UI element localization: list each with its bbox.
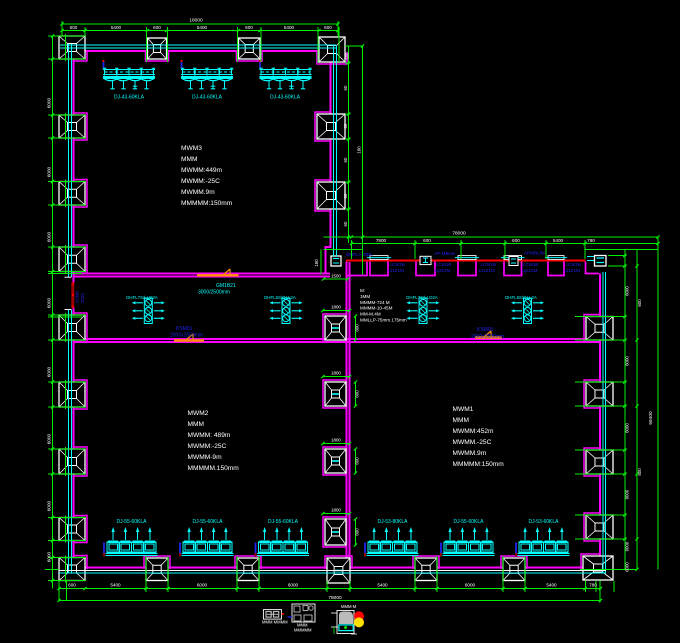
svg-text:5400: 5400 bbox=[377, 583, 388, 588]
svg-text:MMM: MMM bbox=[453, 417, 469, 424]
svg-text:BMPLA-MDL: BMPLA-MDL bbox=[346, 252, 373, 257]
svg-text:6000: 6000 bbox=[625, 423, 630, 433]
svg-text:600: 600 bbox=[70, 25, 78, 30]
svg-text:12x21M: 12x21M bbox=[388, 268, 405, 273]
svg-text:5400: 5400 bbox=[284, 25, 295, 30]
svg-text:MMMMM: MMMMM bbox=[294, 628, 312, 633]
svg-text:600: 600 bbox=[423, 238, 431, 243]
svg-text:6000: 6000 bbox=[625, 489, 630, 499]
svg-text:78000: 78000 bbox=[328, 595, 342, 601]
svg-text:1800: 1800 bbox=[331, 305, 341, 310]
svg-text:12x21M: 12x21M bbox=[434, 268, 451, 273]
svg-text:60: 60 bbox=[343, 157, 348, 162]
svg-text:60: 60 bbox=[343, 221, 348, 226]
svg-text:600: 600 bbox=[637, 468, 642, 476]
svg-text:MWM3: MWM3 bbox=[181, 145, 202, 152]
svg-text:5400: 5400 bbox=[553, 238, 564, 243]
svg-text:600: 600 bbox=[355, 324, 360, 332]
svg-text:6000: 6000 bbox=[625, 356, 630, 366]
svg-text:MMM: MMM bbox=[188, 421, 204, 428]
svg-text:MMM: MMM bbox=[181, 156, 197, 163]
svg-text:60: 60 bbox=[343, 123, 348, 128]
svg-text:DJ-43-60KLA: DJ-43-60KLA bbox=[270, 95, 301, 101]
svg-text:600: 600 bbox=[245, 25, 253, 30]
svg-text:600: 600 bbox=[355, 457, 360, 465]
svg-text:59400: 59400 bbox=[648, 411, 654, 425]
svg-text:DJ-55-60KLA: DJ-55-60KLA bbox=[453, 519, 484, 525]
svg-text:1MM: 1MM bbox=[360, 294, 370, 299]
svg-text:5400: 5400 bbox=[197, 25, 208, 30]
svg-text:18000: 18000 bbox=[189, 18, 203, 24]
svg-text:1800: 1800 bbox=[331, 508, 341, 513]
svg-text:LCM1B: LCM1B bbox=[481, 262, 496, 267]
svg-text:6000: 6000 bbox=[465, 583, 476, 588]
svg-text:78000: 78000 bbox=[452, 231, 466, 237]
svg-text:600: 600 bbox=[512, 238, 520, 243]
svg-text:7800: 7800 bbox=[376, 238, 387, 243]
svg-text:6000: 6000 bbox=[47, 366, 52, 377]
svg-text:5400: 5400 bbox=[111, 25, 122, 30]
svg-text:MMMMM:150mm: MMMMM:150mm bbox=[453, 461, 505, 468]
svg-text:60: 60 bbox=[343, 85, 348, 90]
svg-text:6000: 6000 bbox=[47, 433, 52, 444]
svg-text:LCM1B: LCM1B bbox=[523, 262, 538, 267]
svg-text:DHFL7S/LLD2A: DHFL7S/LLD2A bbox=[126, 295, 158, 300]
svg-text:MWMM.9m: MWMM.9m bbox=[453, 450, 487, 457]
svg-text:MWMM:449m: MWMM:449m bbox=[181, 167, 223, 174]
svg-text:600: 600 bbox=[355, 528, 360, 536]
svg-text:DJ-43-60KLA: DJ-43-60KLA bbox=[114, 95, 145, 101]
svg-text:5400: 5400 bbox=[546, 583, 557, 588]
svg-text:LCM1B: LCM1B bbox=[390, 262, 405, 267]
svg-text:DHFL5S/QLL2A: DHFL5S/QLL2A bbox=[505, 295, 537, 300]
svg-text:MWMM:-25C: MWMM:-25C bbox=[188, 443, 227, 450]
svg-text:AP-MBLM: AP-MBLM bbox=[434, 251, 455, 256]
svg-text:LCM1B: LCM1B bbox=[566, 262, 581, 267]
svg-text:MMMM-10-45M: MMMM-10-45M bbox=[360, 306, 393, 311]
svg-text:DHFL5S/QLL2A: DHFL5S/QLL2A bbox=[264, 295, 296, 300]
svg-text:6000: 6000 bbox=[47, 551, 52, 562]
svg-text:6000: 6000 bbox=[625, 562, 630, 572]
svg-text:12x21M: 12x21M bbox=[521, 268, 538, 273]
svg-text:MWMM:452m: MWMM:452m bbox=[453, 428, 495, 435]
svg-text:MWM1: MWM1 bbox=[453, 406, 474, 413]
svg-text:M:: M: bbox=[360, 288, 365, 293]
svg-text:DHFL7S/LLD2A: DHFL7S/LLD2A bbox=[406, 295, 438, 300]
svg-text:DJ-53-60KLA: DJ-53-60KLA bbox=[528, 519, 559, 525]
svg-text:6000: 6000 bbox=[288, 583, 299, 588]
svg-text:1500: 1500 bbox=[331, 273, 341, 278]
svg-text:KSM0: KSM0 bbox=[75, 290, 80, 303]
svg-text:60: 60 bbox=[343, 193, 348, 198]
svg-text:5400: 5400 bbox=[110, 583, 121, 588]
svg-text:DJ-55-60KLA: DJ-55-60KLA bbox=[268, 519, 299, 525]
svg-text:2025: 2025 bbox=[80, 293, 85, 303]
svg-text:MMM-M: MMM-M bbox=[341, 604, 357, 609]
svg-text:GM1B21: GM1B21 bbox=[216, 283, 236, 289]
svg-text:2000x2500mm: 2000x2500mm bbox=[170, 333, 203, 339]
svg-text:600: 600 bbox=[355, 390, 360, 398]
svg-text:DJ-55-60KLA: DJ-55-60KLA bbox=[116, 519, 147, 525]
svg-text:600: 600 bbox=[345, 52, 350, 60]
svg-text:APMBL/M: APMBL/M bbox=[524, 251, 545, 256]
svg-text:6000: 6000 bbox=[197, 583, 208, 588]
svg-text:600: 600 bbox=[637, 299, 642, 307]
svg-text:6000: 6000 bbox=[47, 97, 52, 108]
svg-text:DJ-55-60KLA: DJ-55-60KLA bbox=[192, 519, 223, 525]
svg-text:MWMM-9m: MWMM-9m bbox=[188, 454, 223, 461]
svg-text:MMMM-724 M: MMMM-724 M bbox=[360, 300, 390, 305]
svg-text:12x21M: 12x21M bbox=[564, 268, 581, 273]
svg-text:6000: 6000 bbox=[625, 286, 630, 296]
svg-text:6000: 6000 bbox=[47, 500, 52, 511]
svg-text:DJ-43-60KLA: DJ-43-60KLA bbox=[192, 95, 223, 101]
svg-text:12x21M: 12x21M bbox=[479, 268, 496, 273]
svg-text:6000: 6000 bbox=[47, 231, 52, 242]
svg-text:MM-M.4M: MM-M.4M bbox=[360, 312, 381, 317]
svg-text:MMM MMMM: MMM MMMM bbox=[262, 620, 288, 625]
svg-text:2000x2500mm: 2000x2500mm bbox=[471, 334, 504, 340]
svg-text:180: 180 bbox=[357, 146, 362, 154]
svg-text:1800: 1800 bbox=[331, 371, 341, 376]
svg-text:780: 780 bbox=[589, 583, 597, 588]
svg-text:MWM2: MWM2 bbox=[188, 410, 209, 417]
svg-text:600: 600 bbox=[324, 25, 332, 30]
svg-text:MWMM:-25C: MWMM:-25C bbox=[181, 178, 220, 185]
svg-text:LCM1B: LCM1B bbox=[436, 262, 451, 267]
svg-text:180: 180 bbox=[314, 259, 319, 267]
svg-text:6000: 6000 bbox=[47, 297, 52, 308]
svg-text:KSM01: KSM01 bbox=[176, 326, 193, 332]
svg-text:600: 600 bbox=[153, 25, 161, 30]
svg-text:3000/2500mm: 3000/2500mm bbox=[198, 290, 230, 296]
svg-text:MWMM: 489m: MWMM: 489m bbox=[188, 432, 231, 439]
svg-text:1800: 1800 bbox=[331, 438, 341, 443]
svg-text:MMMMM.150mm: MMMMM.150mm bbox=[188, 465, 240, 472]
svg-text:6000: 6000 bbox=[47, 166, 52, 177]
svg-text:KSM01: KSM01 bbox=[477, 327, 494, 333]
svg-text:780: 780 bbox=[587, 238, 595, 243]
svg-text:MMLLP-75mm.175mm: MMLLP-75mm.175mm bbox=[360, 318, 407, 323]
svg-text:6000: 6000 bbox=[625, 541, 630, 551]
svg-text:MWMM.-25C: MWMM.-25C bbox=[453, 439, 492, 446]
svg-text:MMMMM:150mm: MMMMM:150mm bbox=[181, 200, 233, 207]
svg-text:600: 600 bbox=[68, 583, 76, 588]
svg-text:DJ-53-80KLA: DJ-53-80KLA bbox=[377, 519, 408, 525]
svg-text:MWMM.9m: MWMM.9m bbox=[181, 189, 215, 196]
